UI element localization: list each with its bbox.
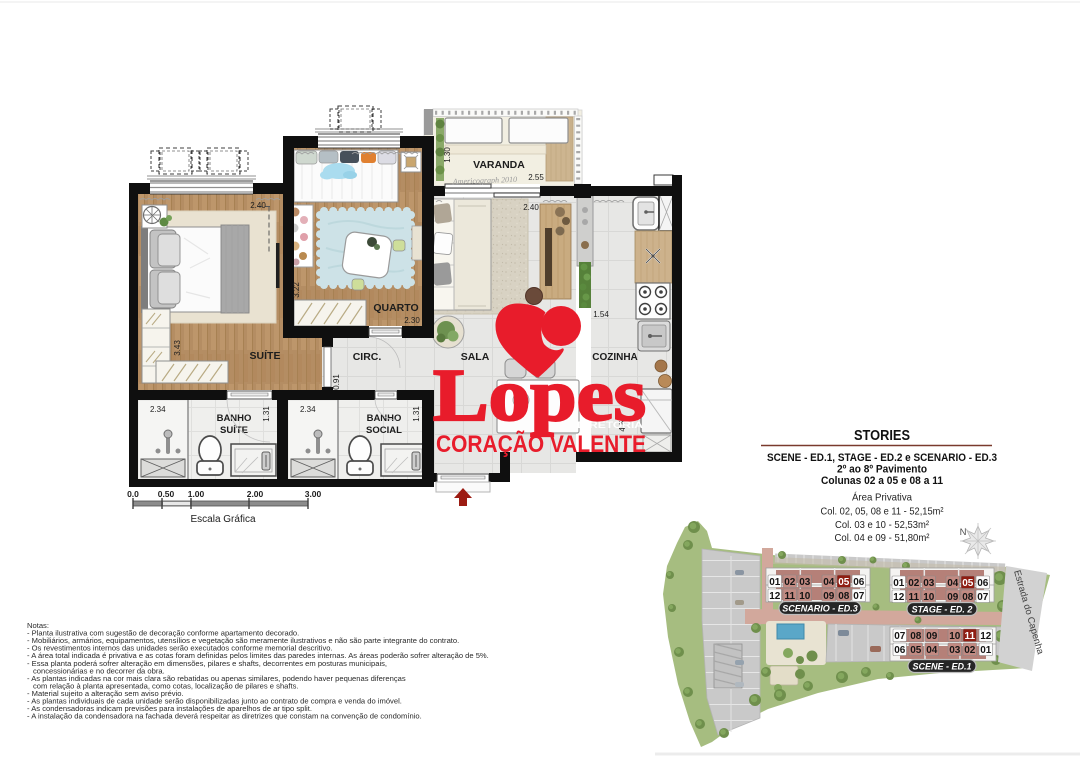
svg-text:02: 02 xyxy=(964,645,976,656)
svg-text:Col. 02, 05, 08 e 11 - 52,15m²: Col. 02, 05, 08 e 11 - 52,15m² xyxy=(821,506,944,518)
svg-text:SOCIAL: SOCIAL xyxy=(366,425,402,436)
svg-text:12: 12 xyxy=(980,631,992,642)
svg-text:CIRC.: CIRC. xyxy=(353,351,382,363)
svg-text:03: 03 xyxy=(949,645,961,656)
svg-text:SUÍTE: SUÍTE xyxy=(250,349,281,362)
svg-text:09: 09 xyxy=(823,591,835,602)
svg-text:2.40: 2.40 xyxy=(250,201,266,210)
svg-text:10: 10 xyxy=(949,631,961,642)
svg-text:2.34: 2.34 xyxy=(150,405,166,414)
svg-text:03: 03 xyxy=(923,578,935,589)
svg-text:2º ao 8º Pavimento: 2º ao 8º Pavimento xyxy=(837,464,927,476)
svg-text:01: 01 xyxy=(893,578,905,589)
svg-text:2.00: 2.00 xyxy=(247,489,264,499)
svg-text:07: 07 xyxy=(853,591,865,602)
svg-text:2.30: 2.30 xyxy=(404,316,420,325)
svg-text:Área Privativa: Área Privativa xyxy=(852,491,912,504)
svg-text:02: 02 xyxy=(784,577,796,588)
svg-text:3.00: 3.00 xyxy=(305,489,322,499)
svg-text:05: 05 xyxy=(910,645,922,656)
svg-text:08: 08 xyxy=(910,631,922,642)
svg-text:04: 04 xyxy=(926,645,938,656)
svg-text:11: 11 xyxy=(908,592,919,603)
svg-text:SCENE - ED.1: SCENE - ED.1 xyxy=(912,662,971,672)
svg-text:2.40: 2.40 xyxy=(523,203,539,212)
svg-text:1.30: 1.30 xyxy=(443,147,452,163)
svg-text:03: 03 xyxy=(799,577,811,588)
svg-text:08: 08 xyxy=(962,592,974,603)
svg-text:CORAÇÃO VALENTE: CORAÇÃO VALENTE xyxy=(436,430,646,458)
svg-text:12: 12 xyxy=(893,592,905,603)
svg-text:N: N xyxy=(960,527,967,538)
svg-text:1.31: 1.31 xyxy=(262,406,271,422)
svg-text:2.55: 2.55 xyxy=(528,173,544,182)
svg-text:07: 07 xyxy=(894,631,906,642)
svg-text:- A instalação da condensadora: - A instalação da condensadora na fachad… xyxy=(27,712,422,721)
svg-text:11: 11 xyxy=(784,591,795,602)
svg-text:SCENARIO - ED.3: SCENARIO - ED.3 xyxy=(782,604,858,614)
svg-text:10: 10 xyxy=(923,592,935,603)
svg-text:Escala Gráfica: Escala Gráfica xyxy=(190,514,255,525)
svg-text:07: 07 xyxy=(977,592,989,603)
svg-text:06: 06 xyxy=(977,578,989,589)
svg-text:1.00: 1.00 xyxy=(188,489,205,499)
svg-text:Col. 04 e 09 - 51,80m²: Col. 04 e 09 - 51,80m² xyxy=(835,532,930,544)
svg-text:06: 06 xyxy=(894,645,906,656)
svg-text:STAGE - ED. 2: STAGE - ED. 2 xyxy=(912,605,973,615)
svg-text:Colunas 02 a 05 e 08 a 11: Colunas 02 a 05 e 08 a 11 xyxy=(821,475,943,487)
svg-text:06: 06 xyxy=(853,577,865,588)
svg-text:1.54: 1.54 xyxy=(593,310,609,319)
svg-text:STORIES: STORIES xyxy=(854,428,910,444)
svg-text:3.22: 3.22 xyxy=(292,282,301,298)
svg-text:0.91: 0.91 xyxy=(332,374,341,390)
svg-text:0.50: 0.50 xyxy=(158,489,175,499)
svg-text:1.31: 1.31 xyxy=(412,406,421,422)
svg-text:BANHO: BANHO xyxy=(367,413,402,424)
svg-text:3.43: 3.43 xyxy=(173,340,182,356)
svg-text:08: 08 xyxy=(838,591,850,602)
svg-text:10: 10 xyxy=(799,591,811,602)
svg-text:0.0: 0.0 xyxy=(127,489,139,499)
svg-text:04: 04 xyxy=(823,577,835,588)
svg-text:SUÍTE: SUÍTE xyxy=(220,425,248,436)
svg-text:01: 01 xyxy=(769,577,781,588)
svg-text:05: 05 xyxy=(838,577,850,588)
svg-text:01: 01 xyxy=(980,645,992,656)
svg-text:12: 12 xyxy=(769,591,781,602)
svg-text:09: 09 xyxy=(926,631,938,642)
svg-text:SCENE - ED.1, STAGE - ED.2 e S: SCENE - ED.1, STAGE - ED.2 e SCENARIO - … xyxy=(767,452,997,464)
svg-text:QUARTO: QUARTO xyxy=(373,302,418,314)
svg-text:05: 05 xyxy=(962,578,974,589)
svg-text:04: 04 xyxy=(947,578,959,589)
svg-text:02: 02 xyxy=(908,578,920,589)
svg-text:11: 11 xyxy=(964,631,975,642)
svg-text:Col. 03 e 10 - 52,53m²: Col. 03 e 10 - 52,53m² xyxy=(835,519,929,531)
svg-text:VARANDA: VARANDA xyxy=(473,159,525,171)
svg-text:DIRETORIA: DIRETORIA xyxy=(577,420,643,431)
svg-text:2.34: 2.34 xyxy=(300,405,316,414)
svg-text:09: 09 xyxy=(947,592,959,603)
